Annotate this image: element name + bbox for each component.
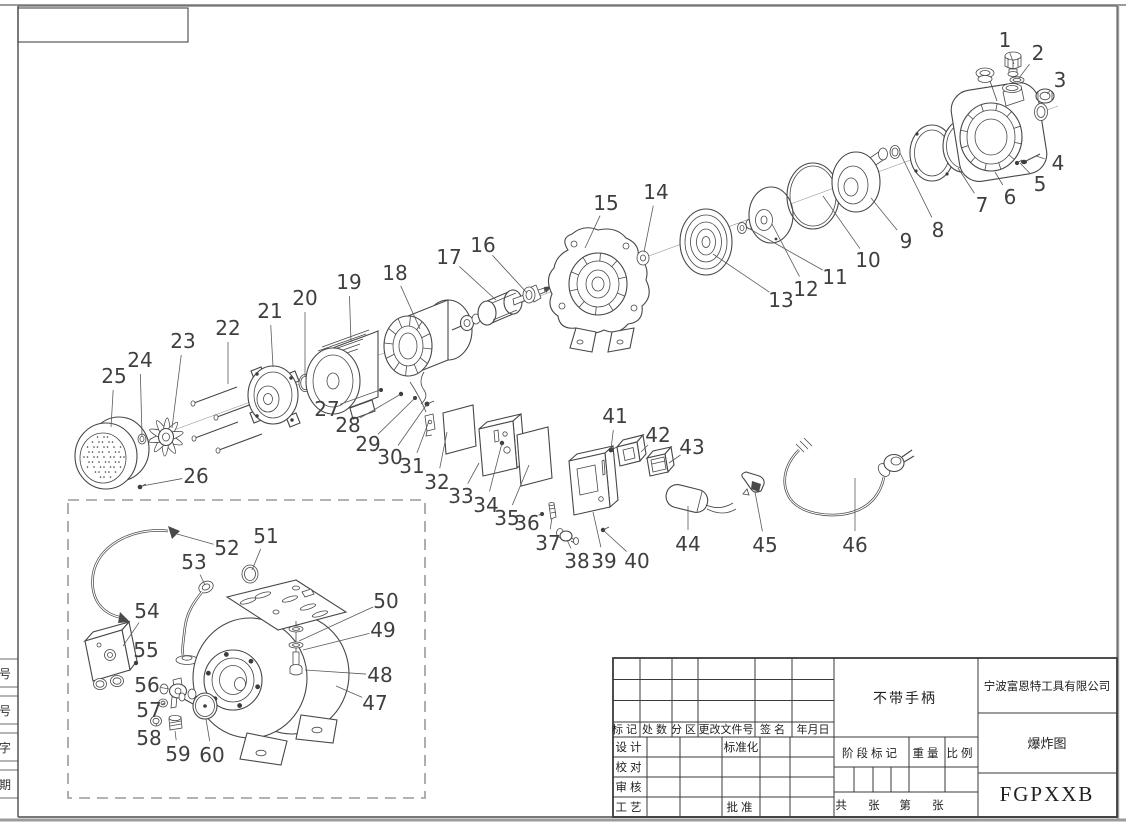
part-label-54: 54 bbox=[134, 599, 159, 623]
part-label-39: 39 bbox=[591, 549, 616, 573]
title-block: 标记 处数 分区 更改文件号 签名 年月日 设计 校对 审核 工艺 标准化 批准… bbox=[612, 658, 1117, 817]
plug-59 bbox=[169, 715, 182, 730]
cable-clip bbox=[742, 472, 764, 495]
part-label-21: 21 bbox=[257, 299, 282, 323]
part-label-45: 45 bbox=[752, 533, 777, 557]
standardization-label: 标准化 bbox=[724, 740, 759, 754]
part-label-41: 41 bbox=[602, 404, 627, 428]
role-audit: 审核 bbox=[616, 780, 645, 794]
stage-label: 阶段标记 bbox=[842, 746, 900, 760]
screw-26 bbox=[138, 484, 146, 489]
part-label-16: 16 bbox=[470, 233, 495, 257]
part-label-2: 2 bbox=[1032, 41, 1045, 65]
scale-label: 比例 bbox=[947, 746, 976, 760]
pressure-switch bbox=[85, 622, 137, 690]
part-label-12: 12 bbox=[793, 277, 818, 301]
part-label-6: 6 bbox=[1004, 185, 1017, 209]
sheet-number-label: 第 张 bbox=[899, 798, 952, 812]
rev-header-date: 年月日 bbox=[797, 722, 830, 736]
part-label-49: 49 bbox=[370, 618, 395, 642]
terminal-gasket-rear bbox=[443, 405, 476, 454]
power-cord bbox=[785, 438, 914, 515]
part-label-43: 43 bbox=[679, 435, 704, 459]
part-label-47: 47 bbox=[362, 691, 387, 715]
part-label-11: 11 bbox=[822, 265, 847, 289]
part-label-20: 20 bbox=[292, 286, 317, 310]
approval-label: 批准 bbox=[727, 800, 756, 814]
part-label-13: 13 bbox=[768, 288, 793, 312]
ejector-disc bbox=[680, 209, 732, 275]
part-label-58: 58 bbox=[136, 726, 161, 750]
model-number: FGPXXB bbox=[1000, 782, 1095, 806]
exploded-view bbox=[68, 52, 1058, 798]
part-label-55: 55 bbox=[133, 638, 158, 662]
filler-plug bbox=[1005, 52, 1021, 77]
part-label-50: 50 bbox=[373, 589, 398, 613]
part-label-44: 44 bbox=[675, 532, 700, 556]
cable-gland-pin bbox=[549, 502, 556, 519]
diffuser bbox=[832, 146, 900, 213]
part-label-15: 15 bbox=[593, 191, 618, 215]
part-label-19: 19 bbox=[336, 270, 361, 294]
fan bbox=[149, 418, 183, 456]
part-label-31: 31 bbox=[399, 454, 424, 478]
margin-label-4: 期 bbox=[0, 778, 11, 792]
part-label-14: 14 bbox=[643, 180, 668, 204]
part-label-59: 59 bbox=[165, 742, 190, 766]
margin-label-1: 号 bbox=[0, 667, 11, 681]
margin-label-3: 字 bbox=[0, 740, 11, 755]
part-label-26: 26 bbox=[183, 464, 208, 488]
company-name: 宁波富恩特工具有限公司 bbox=[984, 679, 1111, 693]
pump-housing bbox=[948, 68, 1049, 184]
part-label-52: 52 bbox=[214, 536, 239, 560]
pressure-tank bbox=[193, 580, 349, 765]
capacitor bbox=[664, 482, 736, 514]
part-label-33: 33 bbox=[448, 484, 473, 508]
fan-cover bbox=[75, 417, 149, 489]
rev-header-sign: 签名 bbox=[760, 722, 788, 736]
terminal-gasket-front bbox=[517, 427, 552, 486]
drawing-sheet: 号 号 字 期 bbox=[0, 0, 1126, 827]
part-label-48: 48 bbox=[367, 663, 392, 687]
rev-header-mark: 标记 bbox=[612, 722, 640, 736]
end-bracket bbox=[248, 366, 300, 427]
rev-header-count: 处数 bbox=[642, 723, 670, 736]
rev-header-docno: 更改文件号 bbox=[699, 722, 754, 736]
stator bbox=[384, 300, 472, 404]
part-label-38: 38 bbox=[564, 549, 589, 573]
part-label-3: 3 bbox=[1054, 68, 1067, 92]
part-label-53: 53 bbox=[181, 550, 206, 574]
margin-boxes: 号 号 字 期 bbox=[0, 659, 18, 798]
part-label-42: 42 bbox=[645, 423, 670, 447]
part-label-8: 8 bbox=[932, 218, 945, 242]
top-left-box bbox=[18, 8, 188, 42]
part-label-23: 23 bbox=[170, 329, 195, 353]
role-check: 校对 bbox=[616, 760, 645, 774]
part-label-51: 51 bbox=[253, 524, 278, 548]
nut-plug bbox=[1036, 89, 1054, 103]
part-label-60: 60 bbox=[199, 743, 224, 767]
part-label-56: 56 bbox=[134, 673, 159, 697]
sheets-total-label: 共 张 bbox=[835, 799, 888, 812]
part-label-22: 22 bbox=[215, 316, 240, 340]
part-label-5: 5 bbox=[1034, 172, 1047, 196]
pump-bracket bbox=[548, 228, 649, 352]
part-label-40: 40 bbox=[624, 549, 649, 573]
part-label-32: 32 bbox=[424, 470, 449, 494]
part-label-46: 46 bbox=[842, 533, 867, 557]
washer-plug bbox=[1010, 77, 1024, 83]
role-process: 工艺 bbox=[616, 801, 645, 814]
rev-header-zone: 分区 bbox=[671, 723, 699, 736]
margin-label-2: 号 bbox=[0, 704, 11, 718]
impeller bbox=[749, 187, 793, 243]
washer-small bbox=[637, 251, 649, 265]
pressure-gauge bbox=[179, 693, 217, 719]
part-label-37: 37 bbox=[535, 531, 560, 555]
mechanical-seal bbox=[523, 285, 541, 303]
part-label-1: 1 bbox=[999, 28, 1012, 52]
role-design: 设计 bbox=[616, 741, 645, 754]
part-label-17: 17 bbox=[436, 245, 461, 269]
weight-label: 重量 bbox=[913, 746, 942, 760]
terminal-cover bbox=[569, 446, 618, 515]
part-label-57: 57 bbox=[136, 698, 161, 722]
part-label-18: 18 bbox=[382, 261, 407, 285]
o-ring-hose bbox=[242, 565, 258, 583]
part-label-25: 25 bbox=[101, 364, 126, 388]
switch-43 bbox=[647, 447, 674, 476]
part-label-4: 4 bbox=[1052, 151, 1065, 175]
drawing-type: 爆炸图 bbox=[1027, 736, 1066, 751]
part-label-7: 7 bbox=[976, 193, 989, 217]
part-label-9: 9 bbox=[900, 229, 913, 253]
note-text: 不带手柄 bbox=[873, 690, 937, 706]
part-label-24: 24 bbox=[127, 348, 152, 372]
part-label-10: 10 bbox=[855, 248, 880, 272]
switch-42 bbox=[617, 435, 646, 466]
